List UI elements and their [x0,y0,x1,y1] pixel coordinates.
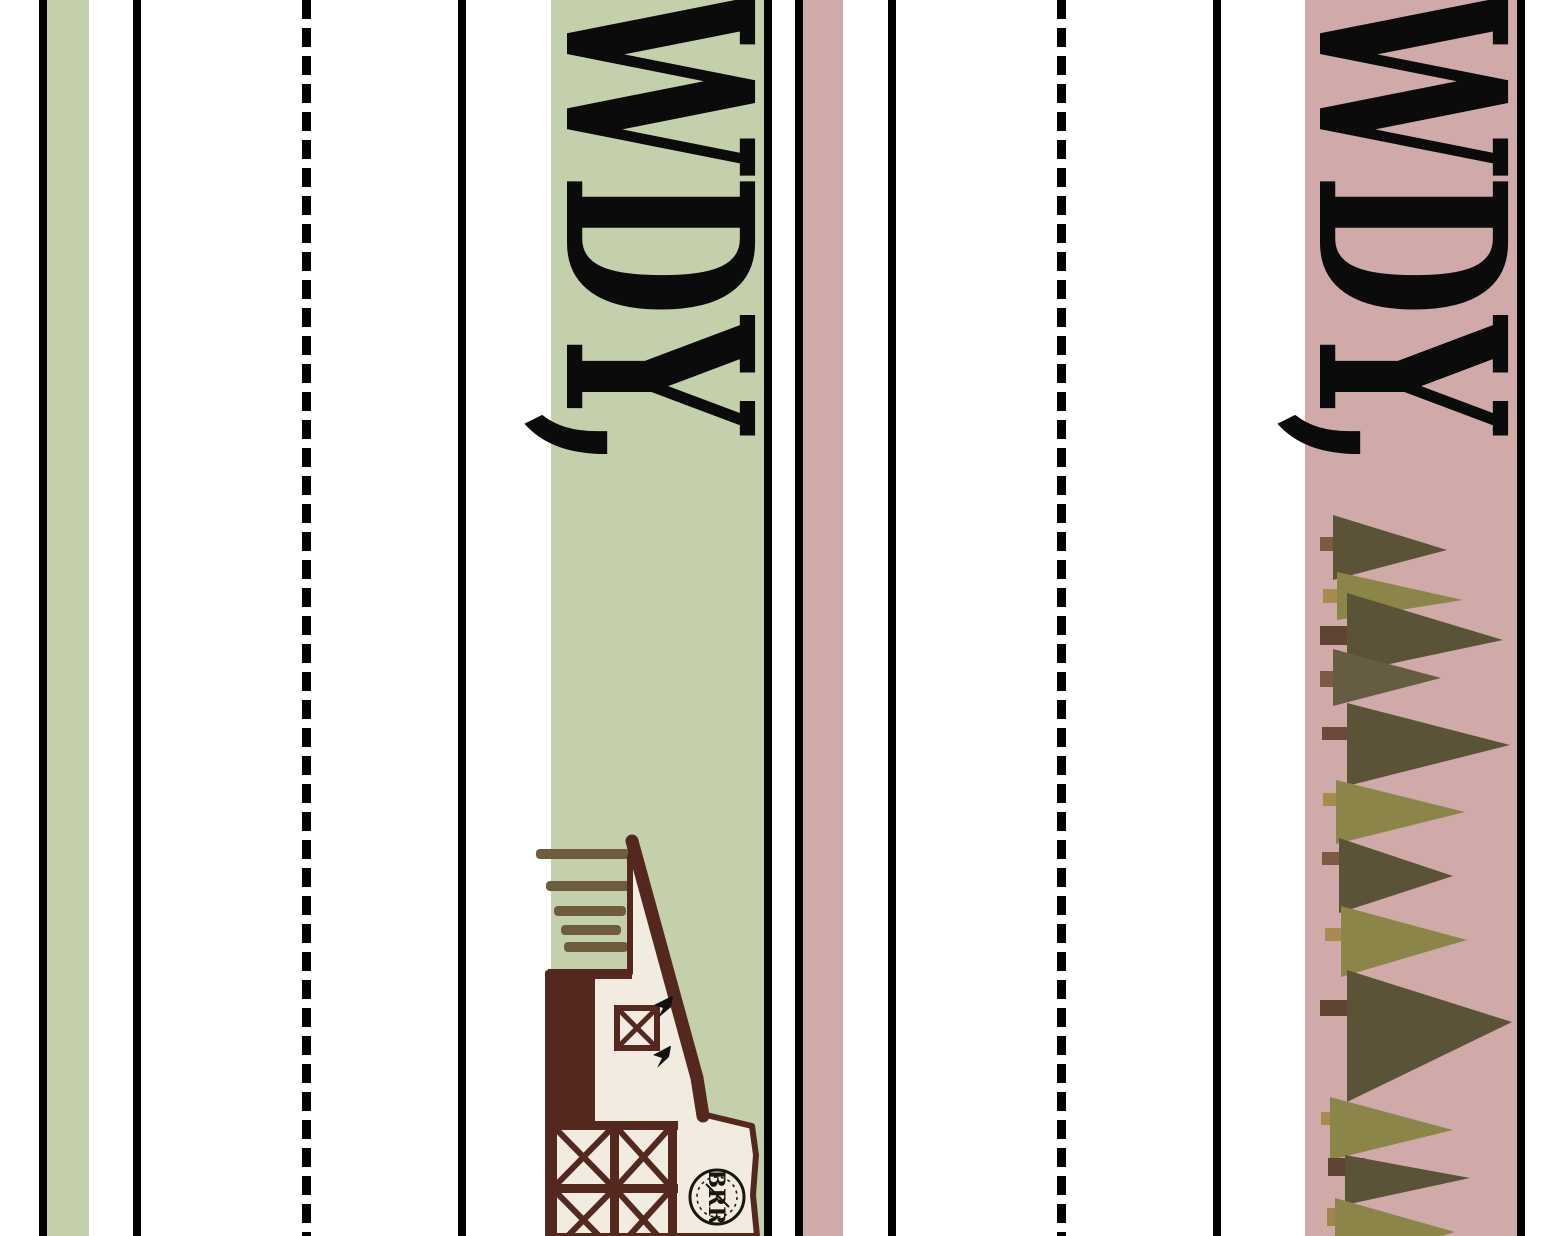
cut-line-solid [888,0,896,1236]
bookmark-panel-rose: HOWDY, [1305,0,1517,1236]
tree-trunk [1320,671,1334,687]
tree-trunk [1323,589,1339,603]
tree-trunk [1325,928,1342,941]
roof-board [564,942,628,952]
cut-line-solid [133,0,141,1236]
fold-line-dashed [1057,0,1066,1236]
brand-logo: BRR [690,1169,744,1225]
tree-trunk [1322,852,1340,865]
howdy-text: HOWDY, [1259,0,1545,470]
tree-trunk [1320,1000,1347,1016]
tree-trunk [1320,626,1348,645]
cut-line-solid [458,0,466,1236]
bookmark-panel-sage: HOWDY, [551,0,764,1236]
cut-line-solid [39,0,47,1236]
cut-line-solid [795,0,803,1236]
tree-trunk [1323,793,1337,806]
roof-board [536,849,630,859]
roof-board [554,906,626,916]
barn-window [617,1008,657,1048]
cut-line-solid [764,0,772,1236]
brand-logo-text: BRR [703,1169,729,1225]
cut-line-solid [1213,0,1221,1236]
roof-board [546,881,630,891]
fold-line-dashed [302,0,311,1236]
cut-line-solid [1517,0,1525,1236]
barn-side-wall [548,971,595,1129]
roof-board [561,925,621,935]
tree-trunk [1320,537,1335,551]
accent-stripe-rose [803,0,843,1236]
accent-stripe-sage [47,0,89,1236]
tree-trunk [1322,727,1348,740]
bookmark-sheet: HOWDY, [0,0,1545,1236]
